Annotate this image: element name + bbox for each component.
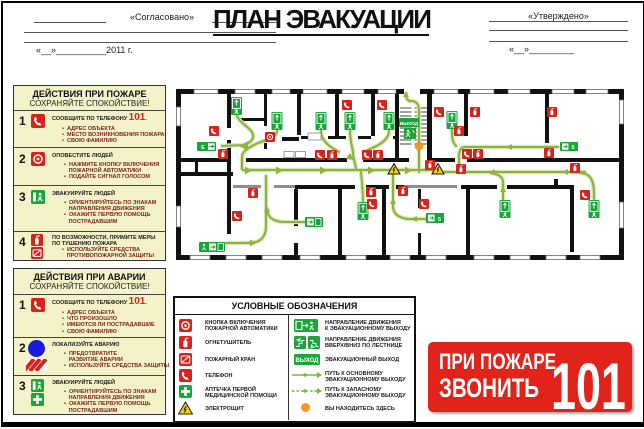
svg-text:ВЫХОД: ВЫХОД <box>400 121 419 127</box>
svg-text:5: 5 <box>438 217 441 223</box>
svg-text:Е: Е <box>201 145 205 151</box>
svg-text:5: 5 <box>571 145 574 151</box>
